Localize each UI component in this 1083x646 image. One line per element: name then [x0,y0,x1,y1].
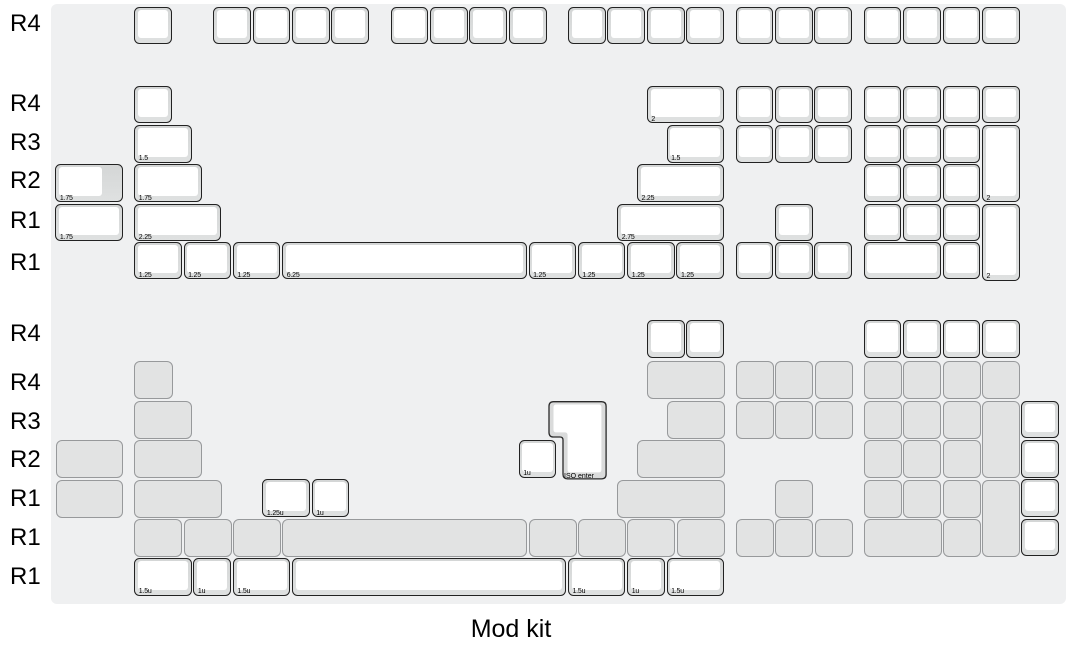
svg-text:ISO enter: ISO enter [564,472,595,479]
